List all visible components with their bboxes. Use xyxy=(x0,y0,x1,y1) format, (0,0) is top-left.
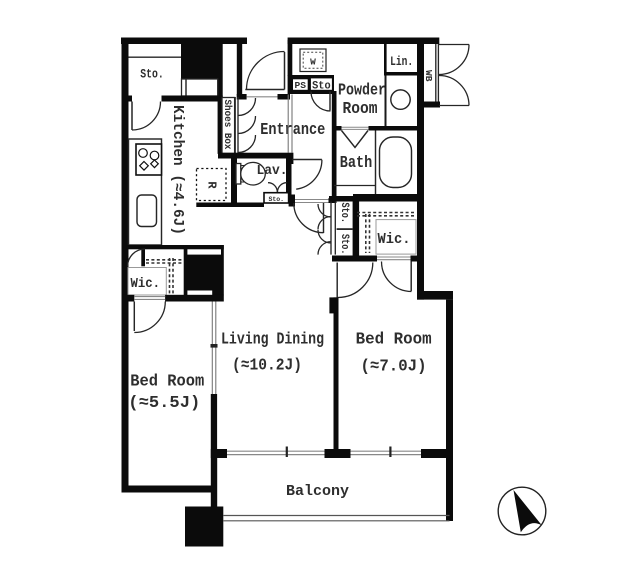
svg-text:(≈7.0J): (≈7.0J) xyxy=(361,358,427,377)
svg-text:Sto: Sto xyxy=(312,81,331,93)
svg-text:Wic.: Wic. xyxy=(378,232,411,248)
svg-text:Bath: Bath xyxy=(340,153,373,172)
svg-text:(≈10.2J): (≈10.2J) xyxy=(232,357,302,376)
svg-text:Sto.: Sto. xyxy=(338,234,350,255)
svg-text:Shoes Box: Shoes Box xyxy=(221,100,233,150)
svg-text:Bed Room: Bed Room xyxy=(130,373,204,392)
svg-text:WB: WB xyxy=(423,70,434,82)
svg-text:Wic.: Wic. xyxy=(131,277,161,292)
svg-text:Kitchen (≈4.6J): Kitchen (≈4.6J) xyxy=(169,105,185,235)
svg-text:Room: Room xyxy=(343,99,378,118)
svg-text:Lav.: Lav. xyxy=(257,163,288,179)
svg-text:Entrance: Entrance xyxy=(260,120,325,139)
svg-text:(≈5.5J): (≈5.5J) xyxy=(128,394,200,413)
svg-text:Sto.: Sto. xyxy=(268,196,284,203)
svg-text:PS: PS xyxy=(295,80,307,91)
svg-text:R: R xyxy=(204,181,218,189)
svg-text:Bed Room: Bed Room xyxy=(356,331,432,350)
svg-text:Lin.: Lin. xyxy=(390,54,413,69)
svg-text:W: W xyxy=(310,57,316,68)
svg-text:Powder: Powder xyxy=(338,81,386,100)
svg-text:Sto.: Sto. xyxy=(140,67,164,82)
svg-text:Balcony: Balcony xyxy=(286,484,349,500)
svg-text:Living Dining: Living Dining xyxy=(221,331,324,350)
svg-text:Sto.: Sto. xyxy=(338,203,350,224)
